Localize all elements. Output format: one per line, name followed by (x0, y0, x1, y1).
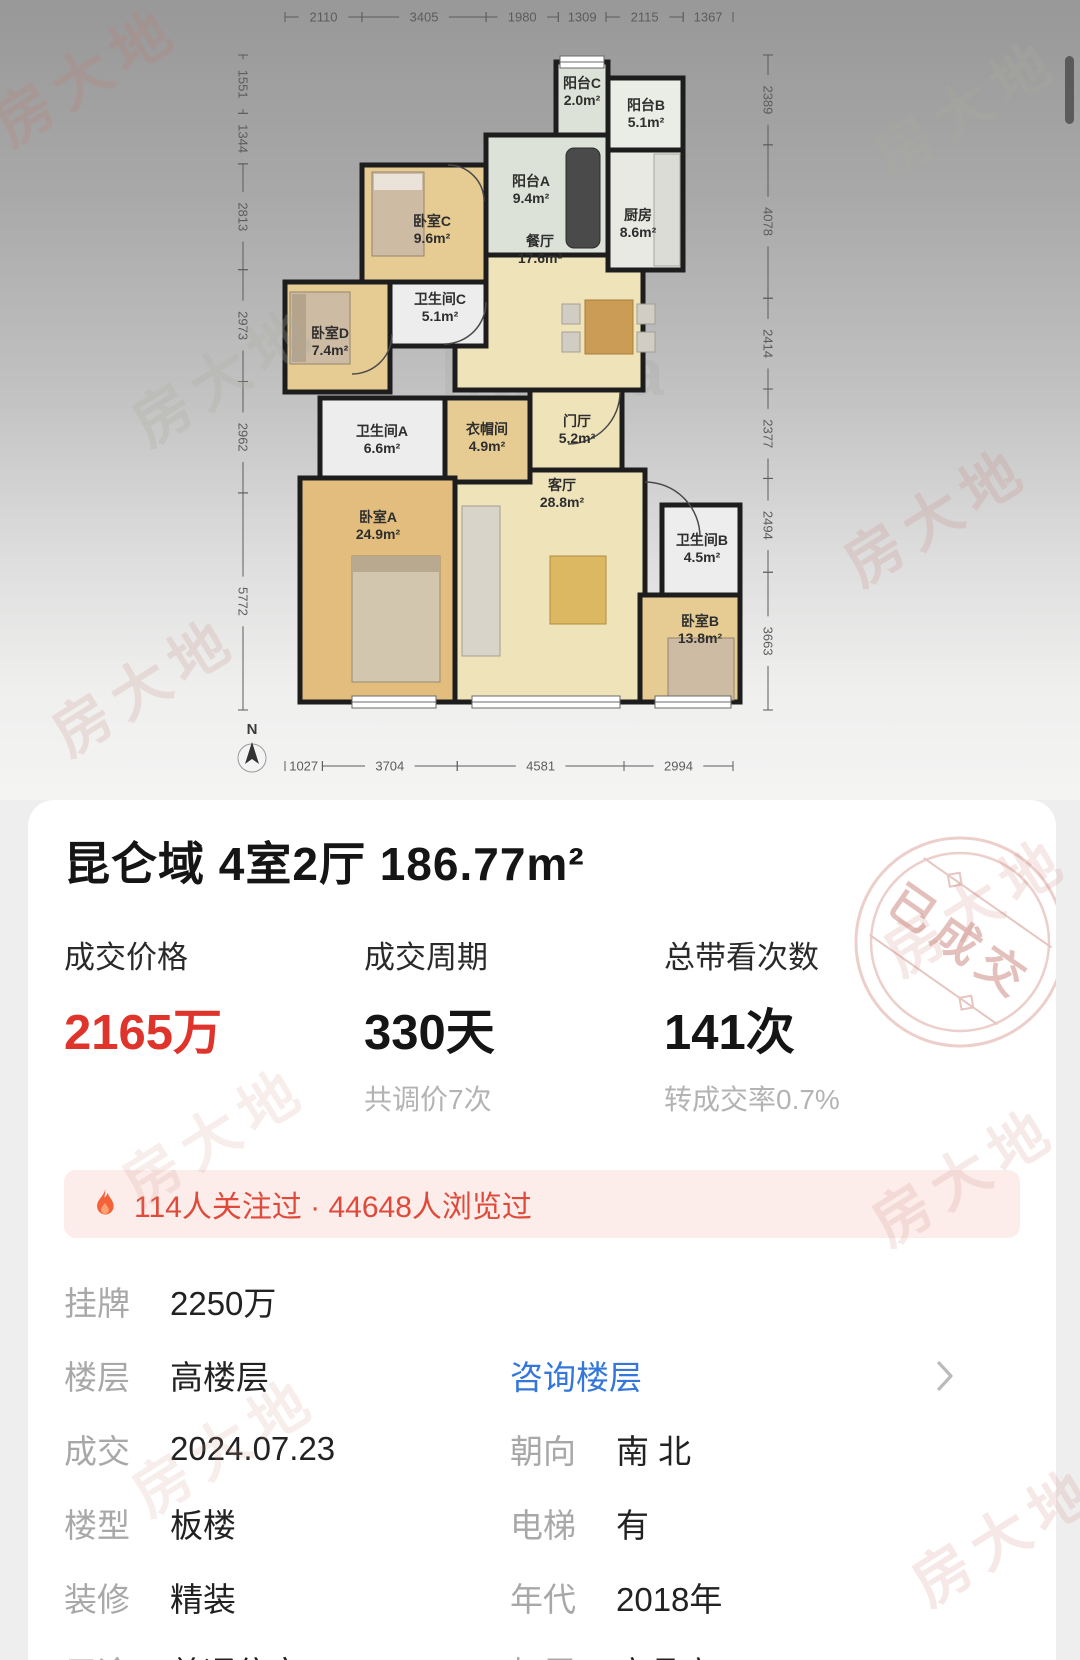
detail-value: 2018年 (616, 1573, 722, 1621)
dim-label: 3704 (375, 759, 404, 774)
consult-floor-link[interactable]: 咨询楼层 (510, 1351, 642, 1399)
dim-label: 3663 (761, 627, 776, 656)
popularity-text: 114人关注过 · 44648人浏览过 (134, 1182, 532, 1226)
detail-value: 高楼层 (170, 1351, 269, 1399)
dim-label: 1309 (568, 10, 597, 25)
detail-value: 精装 (170, 1573, 236, 1621)
page-title: 昆仑域 4室2厅 186.77m² (64, 828, 1020, 894)
dim-label: 2414 (761, 329, 776, 358)
dim-label: 2973 (236, 311, 251, 340)
dim-label: 1367 (694, 10, 723, 25)
detail-label: 楼型 (64, 1499, 170, 1547)
detail-rows: 挂牌2250万楼层高楼层咨询楼层成交2024.07.23朝向南 北楼型板楼电梯有… (64, 1264, 1020, 1660)
floorplan-hero: lianjia餐厅17.6m²门厅5.2m²客厅28.8m²阳台C2.0m²阳台… (0, 0, 1080, 800)
stat-label: 总带看次数 (664, 932, 840, 977)
furniture (668, 638, 734, 700)
popularity-banner: 114人关注过 · 44648人浏览过 (64, 1170, 1020, 1238)
furniture (637, 304, 655, 324)
detail-value: 板楼 (170, 1499, 236, 1547)
flame-icon (90, 1187, 120, 1221)
stat-label: 成交价格 (64, 932, 222, 977)
detail-value: 南 北 (616, 1425, 691, 1473)
detail-row-0: 挂牌2250万 (64, 1264, 1020, 1338)
dim-label: 2110 (309, 10, 337, 25)
detail-row-3: 楼型板楼电梯有 (64, 1486, 1020, 1560)
room-label-卫生间C: 卫生间C5.1m² (414, 291, 466, 324)
detail-value: 商品房 (616, 1647, 715, 1660)
detail-label: 成交 (64, 1425, 170, 1473)
furniture (352, 556, 440, 572)
furniture (562, 304, 580, 324)
dim-label: 4078 (761, 207, 776, 236)
room-label-门厅: 门厅5.2m² (559, 413, 596, 446)
dim-label: 2389 (761, 85, 776, 114)
detail-row-1: 楼层高楼层咨询楼层 (64, 1338, 1020, 1412)
furniture (374, 174, 422, 190)
stat-value: 141次 (664, 993, 840, 1064)
dim-label: 1027 (289, 759, 318, 774)
dim-label: 2377 (761, 419, 776, 448)
detail-value: 有 (616, 1499, 649, 1547)
room-label-阳台B: 阳台B5.1m² (627, 97, 665, 130)
detail-row-4: 装修精装年代2018年 (64, 1560, 1020, 1634)
dim-label: 2115 (631, 10, 659, 25)
room-label-卧室B: 卧室B13.8m² (678, 613, 723, 646)
room-label-卧室D: 卧室D7.4m² (311, 325, 349, 358)
stat-label: 成交周期 (364, 932, 495, 977)
furniture (562, 332, 580, 352)
dim-label: 5772 (236, 587, 251, 616)
detail-label: 用途 (64, 1647, 170, 1660)
detail-value: 2250万 (170, 1277, 276, 1325)
furniture (352, 556, 440, 682)
dim-label: 2813 (236, 202, 251, 231)
dim-label: 2994 (664, 759, 693, 774)
room-label-卫生间B: 卫生间B4.5m² (676, 532, 728, 565)
floorplan-image: lianjia餐厅17.6m²门厅5.2m²客厅28.8m²阳台C2.0m²阳台… (0, 0, 1080, 800)
furniture (550, 556, 606, 624)
furniture (292, 294, 306, 362)
stats-section: 成交价格 2165万 成交周期 330天 共调价7次 总带看次数 141次 转成… (64, 932, 1020, 1118)
room-label-卧室C: 卧室C9.6m² (413, 213, 451, 246)
room-label-卧室A: 卧室A24.9m² (356, 509, 401, 542)
detail-label: 装修 (64, 1573, 170, 1621)
detail-label: 电梯 (510, 1499, 616, 1547)
furniture (585, 300, 633, 354)
room-label-厨房: 厨房8.6m² (620, 207, 657, 240)
dim-label: 1980 (508, 10, 537, 25)
dim-label: 4581 (526, 759, 555, 774)
furniture (654, 154, 680, 266)
detail-value: 普通住宅 (170, 1647, 302, 1660)
detail-label: 楼层 (64, 1351, 170, 1399)
listing-card: 已成交 昆仑域 4室2厅 186.77m² 成交价格 2165万 成交周期 33… (28, 800, 1056, 1660)
detail-label: 朝向 (510, 1425, 616, 1473)
chevron-right-icon[interactable] (936, 1360, 954, 1392)
stat-value: 2165万 (64, 993, 222, 1064)
dim-label: 1551 (236, 70, 251, 99)
detail-label: 权属 (510, 1647, 616, 1660)
furniture (462, 506, 500, 656)
stat-deal-cycle: 成交周期 330天 共调价7次 (364, 932, 495, 1118)
detail-row-5: 用途普通住宅权属商品房 (64, 1634, 1020, 1660)
furniture (566, 148, 600, 248)
detail-right-pair: 权属商品房 (510, 1647, 715, 1660)
room-label-衣帽间: 衣帽间4.9m² (466, 421, 508, 454)
room-label-卫生间A: 卫生间A6.6m² (356, 423, 408, 456)
detail-row-2: 成交2024.07.23朝向南 北 (64, 1412, 1020, 1486)
detail-label: 挂牌 (64, 1277, 170, 1325)
stat-showings: 总带看次数 141次 转成交率0.7% (664, 932, 840, 1118)
dim-label: 1344 (236, 124, 251, 153)
dim-label: 2494 (761, 511, 776, 540)
detail-right-pair: 朝向南 北 (510, 1425, 691, 1473)
stat-value: 330天 (364, 993, 495, 1064)
north-label: N (247, 721, 258, 738)
detail-label: 年代 (510, 1573, 616, 1621)
furniture (637, 332, 655, 352)
stat-sub: 转成交率0.7% (664, 1078, 840, 1118)
dim-label: 2962 (236, 423, 251, 452)
detail-right-pair: 年代2018年 (510, 1573, 722, 1621)
room-label-阳台A: 阳台A9.4m² (512, 173, 550, 206)
dim-label: 3405 (410, 10, 439, 25)
detail-right-pair: 电梯有 (510, 1499, 649, 1547)
room-label-阳台C: 阳台C2.0m² (563, 75, 601, 108)
stat-sub: 共调价7次 (364, 1078, 495, 1118)
scrollbar-thumb[interactable] (1065, 56, 1074, 124)
detail-value: 2024.07.23 (170, 1430, 335, 1468)
stat-deal-price: 成交价格 2165万 (64, 932, 222, 1078)
